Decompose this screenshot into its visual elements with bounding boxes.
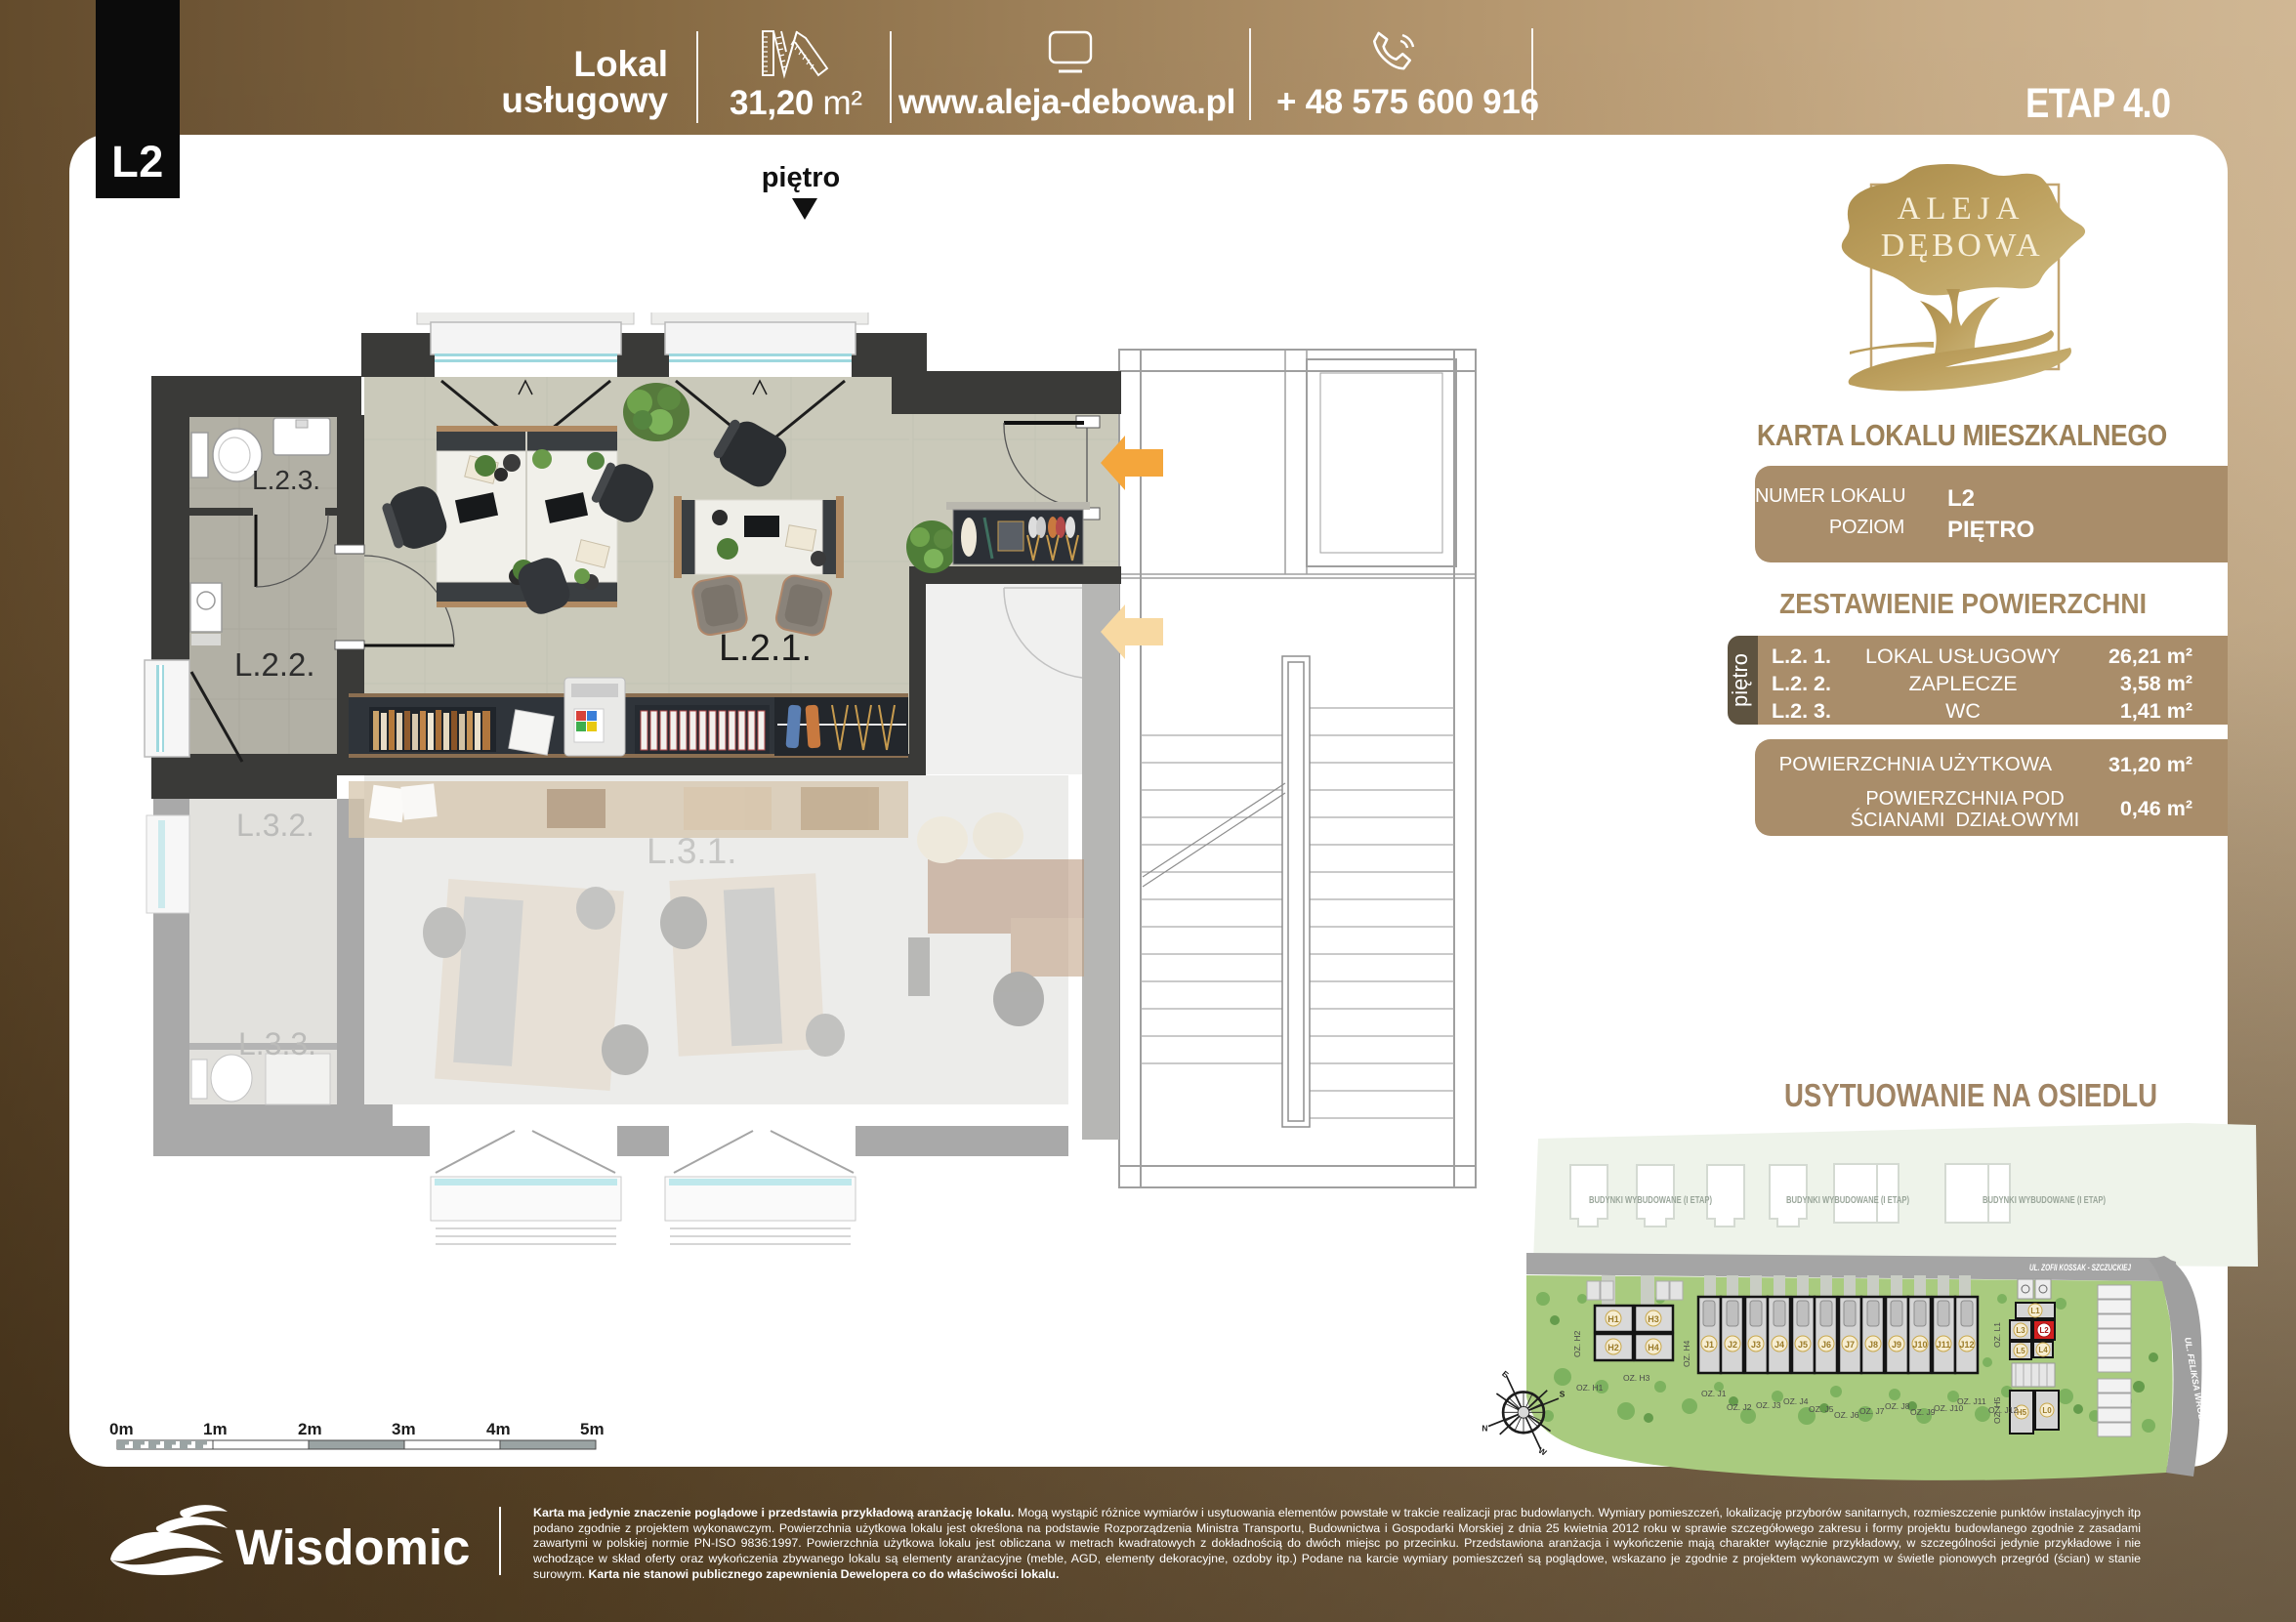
- svg-text:J4: J4: [1774, 1340, 1784, 1350]
- svg-text:L.2.2.: L.2.2.: [234, 646, 315, 683]
- svg-text:J7: J7: [1845, 1340, 1855, 1350]
- svg-text:J11: J11: [1937, 1340, 1951, 1350]
- svg-text:OZ. H3: OZ. H3: [1623, 1373, 1650, 1383]
- svg-text:3m: 3m: [392, 1420, 416, 1438]
- svg-text:OZ. H4: OZ. H4: [1682, 1340, 1691, 1367]
- svg-text:OZ. L1: OZ. L1: [1992, 1322, 2002, 1348]
- svg-text:L3: L3: [2016, 1326, 2025, 1335]
- svg-text:OZ. J3: OZ. J3: [1756, 1400, 1781, 1410]
- svg-text:USYTUOWANIE NA OSIEDLU: USYTUOWANIE NA OSIEDLU: [1784, 1077, 2157, 1113]
- svg-text:OZ. J4: OZ. J4: [1783, 1396, 1809, 1406]
- svg-text:J8: J8: [1868, 1340, 1878, 1350]
- svg-text:L.3.3.: L.3.3.: [238, 1026, 316, 1061]
- svg-text:2m: 2m: [298, 1420, 322, 1438]
- svg-text:OZ. H2: OZ. H2: [1572, 1330, 1582, 1357]
- svg-text:OZ. J1: OZ. J1: [1701, 1389, 1727, 1398]
- svg-text:J3: J3: [1751, 1340, 1761, 1350]
- svg-text:OZ. J5: OZ. J5: [1809, 1404, 1834, 1414]
- svg-text:BUDYNKI WYBUDOWANE (I ETAP): BUDYNKI WYBUDOWANE (I ETAP): [1589, 1194, 1712, 1206]
- svg-text:OZ. J11: OZ. J11: [1957, 1396, 1986, 1406]
- svg-text:J9: J9: [1892, 1340, 1901, 1350]
- svg-text:OZ. J8: OZ. J8: [1885, 1401, 1910, 1411]
- svg-text:L5: L5: [2016, 1347, 2025, 1355]
- svg-text:5m: 5m: [580, 1420, 605, 1438]
- svg-text:J6: J6: [1821, 1340, 1831, 1350]
- svg-text:S: S: [1560, 1389, 1565, 1398]
- svg-text:L0: L0: [2042, 1406, 2052, 1415]
- svg-text:H4: H4: [1648, 1343, 1659, 1352]
- svg-text:L.2.3.: L.2.3.: [252, 465, 320, 495]
- svg-text:OZ. J9: OZ. J9: [1910, 1407, 1936, 1417]
- svg-text:J1: J1: [1704, 1340, 1714, 1350]
- svg-text:OZ. J6: OZ. J6: [1834, 1410, 1859, 1420]
- svg-text:L4: L4: [2038, 1346, 2048, 1354]
- svg-text:BUDYNKI WYBUDOWANE (I ETAP): BUDYNKI WYBUDOWANE (I ETAP): [1983, 1194, 2106, 1206]
- svg-text:L.3.1.: L.3.1.: [647, 831, 737, 871]
- svg-text:OZ. J7: OZ. J7: [1859, 1406, 1885, 1416]
- svg-text:E: E: [1500, 1369, 1511, 1380]
- svg-text:1m: 1m: [203, 1420, 228, 1438]
- svg-text:J5: J5: [1798, 1340, 1808, 1350]
- svg-text:UL. ZOFII KOSSAK - SZCZUCKIEJ: UL. ZOFII KOSSAK - SZCZUCKIEJ: [2029, 1263, 2132, 1272]
- svg-text:OZ. H5: OZ. H5: [1992, 1396, 2002, 1424]
- svg-text:J10: J10: [1912, 1340, 1927, 1350]
- svg-text:L.3.2.: L.3.2.: [236, 808, 314, 843]
- svg-text:H5: H5: [2017, 1408, 2027, 1417]
- svg-text:H1: H1: [1607, 1314, 1619, 1324]
- svg-text:N: N: [1482, 1424, 1487, 1434]
- svg-text:ALEJA: ALEJA: [1898, 191, 2025, 227]
- svg-text:L1: L1: [2030, 1307, 2040, 1315]
- svg-text:L2: L2: [2039, 1326, 2049, 1335]
- svg-text:BUDYNKI WYBUDOWANE (I ETAP): BUDYNKI WYBUDOWANE (I ETAP): [1786, 1194, 1909, 1206]
- svg-text:J12: J12: [1959, 1340, 1974, 1350]
- svg-text:OZ. H1: OZ. H1: [1576, 1383, 1604, 1393]
- svg-text:4m: 4m: [486, 1420, 511, 1438]
- svg-text:0m: 0m: [109, 1420, 134, 1438]
- svg-text:L.2.1.: L.2.1.: [719, 628, 812, 669]
- svg-text:H3: H3: [1648, 1314, 1659, 1324]
- svg-text:Wisdomic: Wisdomic: [235, 1519, 470, 1575]
- svg-text:H2: H2: [1607, 1343, 1619, 1352]
- svg-text:DĘBOWA: DĘBOWA: [1881, 228, 2043, 264]
- svg-text:OZ. J2: OZ. J2: [1727, 1402, 1752, 1412]
- svg-text:J2: J2: [1728, 1340, 1737, 1350]
- svg-text:W: W: [1537, 1445, 1549, 1458]
